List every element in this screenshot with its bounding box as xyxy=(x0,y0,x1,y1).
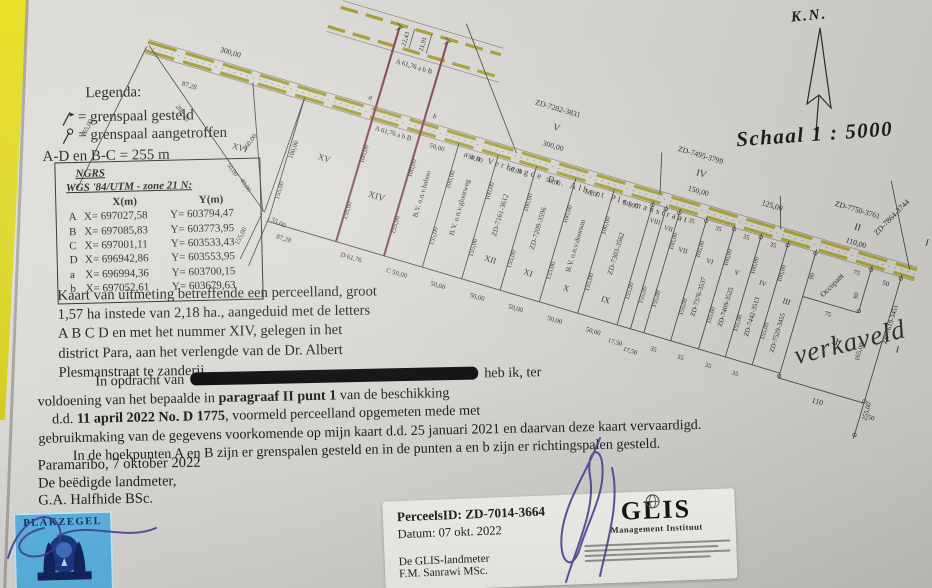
dim-155: 155,00 xyxy=(705,306,717,325)
dim-bot-110: 110 xyxy=(811,396,825,408)
dim-155: 155,00 xyxy=(759,322,771,341)
dim-155: 155,00 xyxy=(506,249,518,269)
dim-100: 100,00 xyxy=(445,169,457,189)
occupant-label: Occupant xyxy=(818,271,846,299)
suriname-coat-of-arms-icon xyxy=(18,527,109,587)
text-span: van de beschikking xyxy=(340,385,450,403)
dim-155: 155,00 xyxy=(651,290,663,309)
dim-100: 100,00 xyxy=(749,256,761,275)
dim-100: 100,00 xyxy=(562,204,574,224)
glis-stamp-box: PerceelsID: ZD-7014-3664 Datum: 07 okt. … xyxy=(382,488,737,588)
dim-top: 35 xyxy=(714,225,722,234)
numeral-vii: VII xyxy=(677,246,689,256)
dim-155: 155,00 xyxy=(624,282,636,301)
dim-155: 155,00 xyxy=(583,272,595,292)
numeral-xiv: XIV xyxy=(367,189,387,204)
corner-c-label: C 50,00 xyxy=(385,267,408,280)
parcel-doorson: B.V. o.n.v.doorson xyxy=(563,218,587,273)
dim-100: 100,00 xyxy=(484,181,496,201)
numeral-xii: XII xyxy=(483,253,497,266)
dim-top: 35 xyxy=(769,241,777,250)
north-num-v: V xyxy=(551,122,561,135)
dim-100: 100,00 xyxy=(407,158,419,178)
dim-bot: 50,00 xyxy=(546,315,563,326)
parcel-zd-7442: ZD-7442-3513 xyxy=(743,296,761,338)
dim-155: 155,00 xyxy=(637,286,649,305)
north-zd-v: ZD-7282-3831 xyxy=(534,98,582,120)
scanned-survey-document: aan Verlengde Dr. Albert Plesmanstraat 2… xyxy=(0,0,932,588)
globe-icon xyxy=(644,493,661,510)
dim-top: 35 xyxy=(742,233,750,242)
north-dim-300: 300,00 xyxy=(542,138,565,153)
north-zd-iv: ZD-7495-3799 xyxy=(677,144,725,166)
dim-100: 100,00 xyxy=(359,144,371,164)
grenspaal-aangetroffen-icon xyxy=(60,127,74,144)
dim-bot: 17,50 xyxy=(622,346,638,357)
parcel-baboo: B.V. o.n.v.baboo xyxy=(410,169,432,218)
opdracht-prefix: In opdracht van xyxy=(95,372,184,390)
dim-top: 50,00 xyxy=(428,142,445,153)
dim-100: 100,00 xyxy=(694,240,706,259)
dim-155: 155,00 xyxy=(732,314,744,333)
numeral-xv: XV xyxy=(317,151,333,164)
dim-155: 155,00 xyxy=(274,180,286,200)
legend-title: Legenda: xyxy=(85,82,279,102)
numeral-viii: VIII xyxy=(649,217,662,227)
dim-155: 155,00 xyxy=(467,237,479,257)
plakzegel-stamp: PLAKZEGEL xyxy=(13,511,114,588)
numeral-v: V xyxy=(733,269,740,277)
dim-100: 100,00 xyxy=(600,215,612,235)
dim-100: 100,00 xyxy=(523,192,535,212)
north-num-ii: II xyxy=(853,221,862,233)
dim-bot: 50,00 xyxy=(469,292,486,303)
ngrs-coordinate-table: NGRS WGS '84/UTM - zone 21 N: X(m) Y(m) … xyxy=(54,158,263,305)
dim-top: 35 xyxy=(687,217,695,226)
numeral-iii: III xyxy=(782,296,792,307)
dim-bot-50: 50 xyxy=(867,414,876,423)
north-dim-150: 150,00 xyxy=(687,184,710,199)
dim-75: 75 xyxy=(852,269,861,278)
stamp-date: Datum: 07 okt. 2022 xyxy=(397,522,546,543)
numeral-xi: XI xyxy=(522,266,534,278)
redaction-bar xyxy=(190,367,478,386)
dim-75: 75 xyxy=(823,310,832,319)
parcel-zd-7161: ZD-7161-3612 xyxy=(489,192,510,237)
dim-8728-b: 87,28 xyxy=(275,234,292,245)
dim-155: 155,00 xyxy=(545,260,557,280)
text-span-bold: paragraaf II punt 1 xyxy=(218,387,336,405)
numeral-ix: IX xyxy=(600,294,612,306)
text-span: d.d. xyxy=(52,411,74,427)
dim-bot: 17,50 xyxy=(607,337,623,348)
text-span-bold: 11 april 2022 No. D 1775 xyxy=(77,408,225,427)
numeral-iv: IV xyxy=(758,280,767,289)
dim-50: 50 xyxy=(881,280,890,289)
dim-bot: 35 xyxy=(649,345,657,354)
signoff-block: Paramaribo, 7 oktober 2022 De beëdigde l… xyxy=(38,452,339,510)
dim-155: 155,00 xyxy=(390,214,402,234)
parcel-zd-7529: ZD-7529-3455 xyxy=(769,312,787,354)
parcel-zd-7376: ZD-7376-3537 xyxy=(690,276,708,318)
dim-90: 90 xyxy=(808,272,817,280)
numeral-vi: VI xyxy=(705,258,715,267)
road-dim-300-left: 300,00 xyxy=(219,45,242,60)
dim-155: 155,00 xyxy=(342,200,354,220)
north-zd-ii: ZD-7750-3761 xyxy=(834,199,882,221)
legend-item-gesteld: = grenspaal gesteld xyxy=(78,106,194,126)
dim-155: 155,00 xyxy=(677,298,689,317)
grenspaal-gesteld-icon xyxy=(60,109,74,126)
glis-fine-print xyxy=(584,536,731,565)
dim-100: 100,00 xyxy=(776,264,788,283)
parcel-zd-7409: ZD-7409-3525 xyxy=(717,286,735,328)
numeral-x: X xyxy=(562,282,572,294)
survey-statement: In opdracht vanheb ik, ter voldoening va… xyxy=(37,358,779,466)
point-a-label: a xyxy=(368,92,374,102)
glis-logo: GLIS Management Instituut xyxy=(580,494,731,536)
parcel-zd-7303: ZD-7303-3562 xyxy=(605,231,626,276)
dim-bot: 50,00 xyxy=(507,303,524,314)
corner-d-label: D 61,76 xyxy=(340,252,364,265)
dim-155: 155,00 xyxy=(428,226,440,246)
north-num-iv: IV xyxy=(695,167,708,180)
north-num-i: I xyxy=(924,237,930,248)
legend: Legenda: = grenspaal gesteld = grenspaal… xyxy=(39,82,280,166)
parcel-zd-7209: ZD-7209-3596 xyxy=(527,206,548,251)
dim-90: 90 xyxy=(852,292,861,300)
dim-bot: 50,00 xyxy=(585,326,602,337)
dim-100: 100,00 xyxy=(722,248,734,267)
ab-top-label: A 61,76 a b B xyxy=(374,125,412,143)
legend-item-aangetroffen: = grenspaal aangetroffen xyxy=(78,124,227,145)
opdracht-suffix: heb ik, ter xyxy=(484,364,541,381)
point-b-label: b xyxy=(432,111,438,121)
text-span: voldoening van het bepaalde in xyxy=(38,390,216,410)
dim-55-west: 55,00 xyxy=(270,216,287,229)
dim-100-west: 100,00 xyxy=(287,139,300,160)
